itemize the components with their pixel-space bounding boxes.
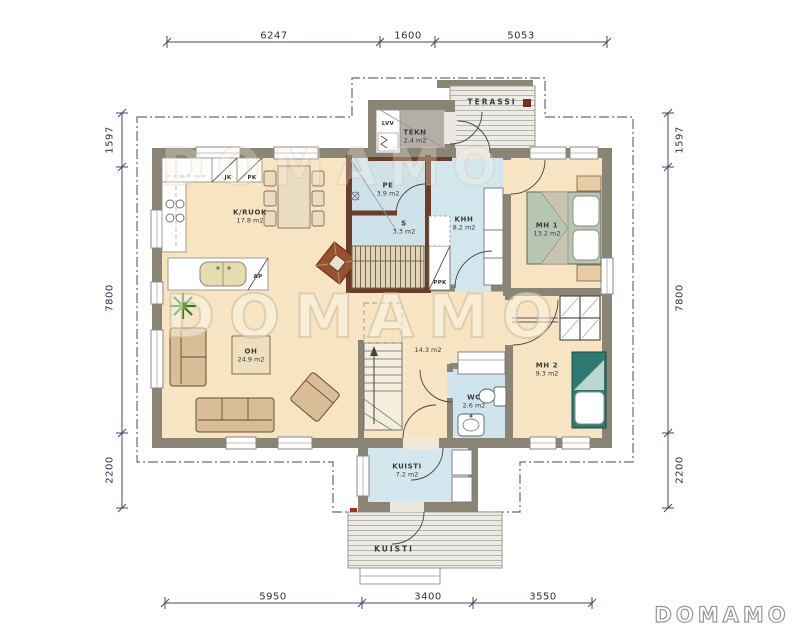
- dim-left-3: 2200: [105, 456, 116, 483]
- dim-top-2: 1600: [394, 31, 421, 42]
- room-label-kuisti-deck: KUISTI: [374, 544, 414, 553]
- dim-bottom-3: 3550: [529, 592, 556, 603]
- dim-left-2: 7800: [105, 284, 116, 311]
- dim-bottom-2: 3400: [414, 592, 441, 603]
- room-area: 2.4 m2: [403, 137, 426, 145]
- room-label-kruok: K/RUOK 17.8 m2: [233, 209, 267, 226]
- room-area: 9.3 m2: [536, 370, 559, 378]
- room-name: KUISTI: [374, 544, 414, 553]
- dim-top-1: 6247: [260, 31, 287, 42]
- room-label-oh: OH 24.9 m2: [237, 348, 264, 365]
- room-area: 8.2 m2: [453, 224, 476, 232]
- room-label-terassi: TERASSI: [467, 97, 516, 106]
- room-label-khh: KHH 8.2 m2: [453, 216, 476, 233]
- watermark-center: DOMAMO: [165, 282, 567, 352]
- room-area: 17.8 m2: [233, 217, 267, 225]
- room-area: 7.2 m2: [392, 471, 422, 479]
- dim-left-1: 1597: [105, 126, 116, 153]
- room-label-sauna: S 3.3 m2: [393, 220, 416, 237]
- appliance-label-jk: JK: [225, 175, 232, 181]
- room-area: 2.6 m2: [463, 402, 486, 410]
- appliance-label-ap: AP: [254, 274, 263, 280]
- porch-deck: [348, 508, 502, 584]
- domamo-logo: DOMAMO: [654, 603, 789, 627]
- room-label-pe: PE 3.9 m2: [377, 182, 400, 199]
- floor-plan-canvas: DOMAMO DOMAMO DOMAMO 6247 1600 5053 5950…: [0, 0, 800, 635]
- room-label-wc: WC 2.6 m2: [463, 394, 486, 411]
- dim-right-2: 7800: [675, 284, 686, 311]
- appliance-label-ppk: PPK: [433, 280, 446, 286]
- dim-top-3: 5053: [507, 31, 534, 42]
- room-label-mh2: MH 2 9.3 m2: [536, 362, 559, 379]
- dim-right-3: 2200: [675, 456, 686, 483]
- room-area: 3.3 m2: [393, 228, 416, 236]
- room-area: 3.9 m2: [377, 190, 400, 198]
- room-label-et: 14.3 m2: [414, 347, 441, 355]
- room-area: 14.3 m2: [414, 347, 441, 355]
- room-area: 24.9 m2: [237, 356, 264, 364]
- appliance-label-lvv: LVV: [382, 121, 394, 127]
- dim-bottom-1: 5950: [259, 592, 286, 603]
- dim-right-1: 1597: [675, 126, 686, 153]
- room-name: TERASSI: [467, 97, 516, 106]
- watermark-ghost: DOMAMO: [161, 138, 508, 198]
- room-area: 13.2 m2: [533, 230, 560, 238]
- room-label-tekn: TEKN 2.4 m2: [403, 129, 426, 146]
- appliance-label-pk: PK: [248, 175, 257, 181]
- room-label-kuisti: KUISTI 7.2 m2: [392, 463, 422, 480]
- room-label-mh1: MH 1 13.2 m2: [533, 222, 560, 239]
